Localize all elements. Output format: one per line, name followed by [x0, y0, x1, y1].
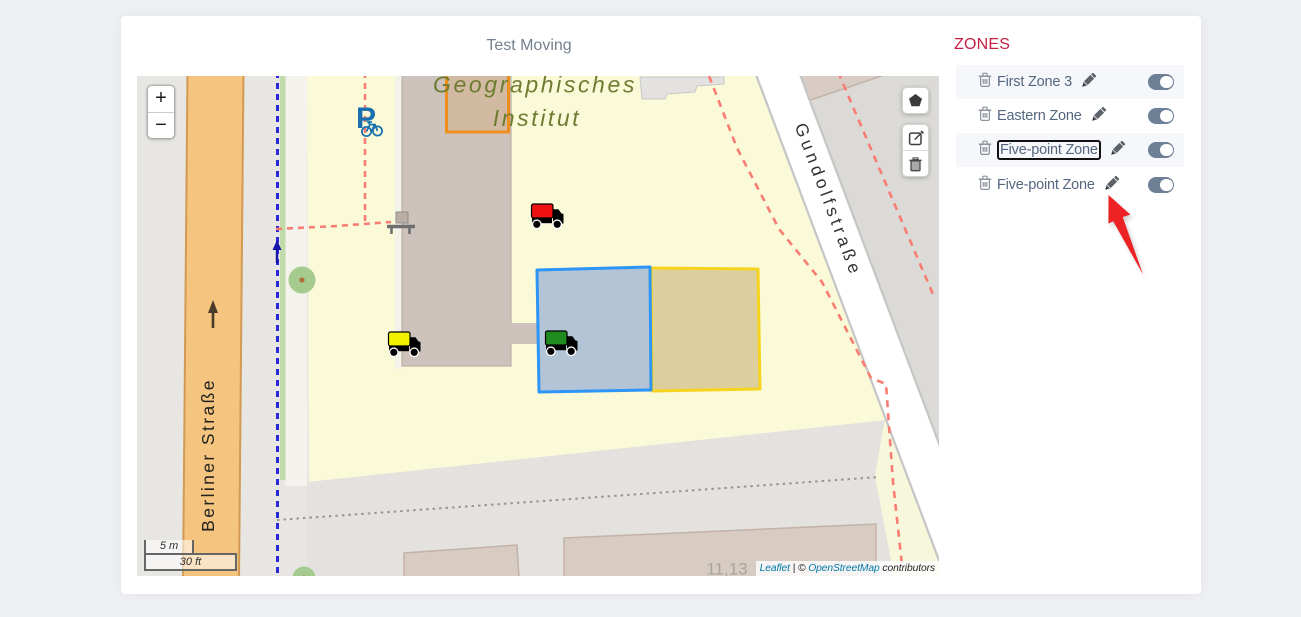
svg-text:Geographisches: Geographisches [433, 76, 637, 98]
svg-text:Institut: Institut [493, 105, 582, 131]
svg-text:11,13: 11,13 [706, 560, 747, 577]
svg-text:Berliner Straße: Berliner Straße [198, 378, 218, 532]
